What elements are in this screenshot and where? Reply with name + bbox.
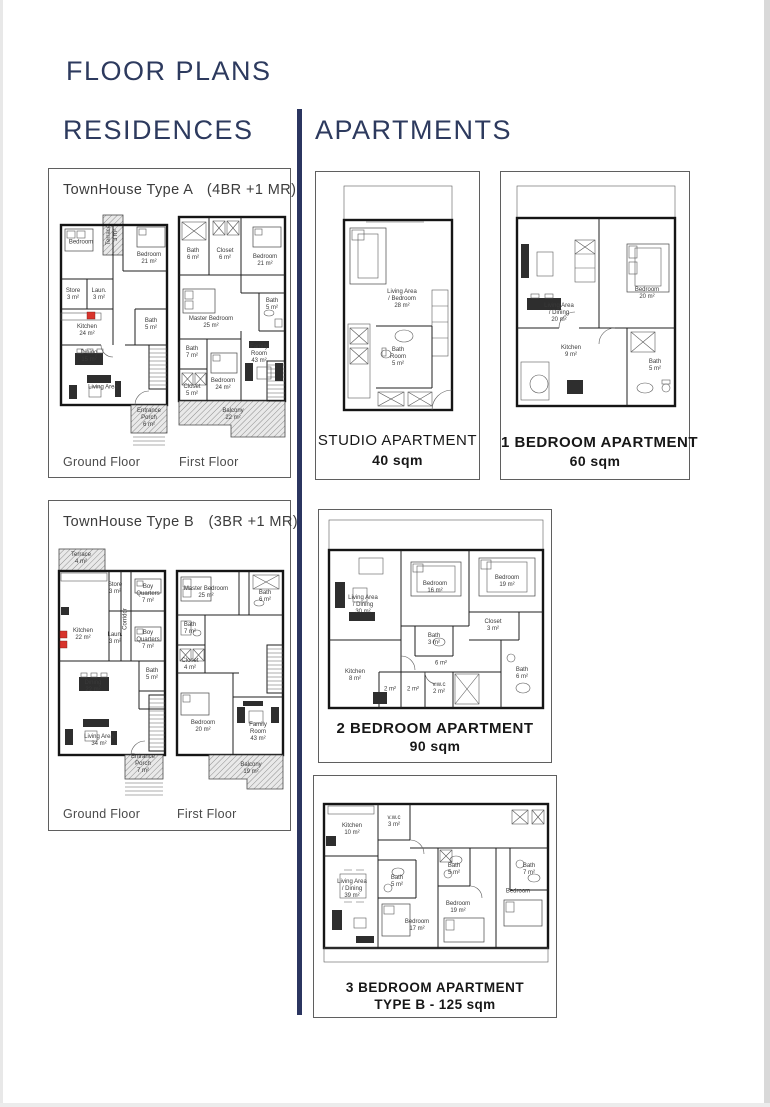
page-title: FLOOR PLANS xyxy=(66,56,272,87)
three-bedroom-panel: Kitchen 10 m² v.w.c 3 m² Living Area / D… xyxy=(313,775,557,1018)
floor-plan-drawing xyxy=(320,790,552,970)
townhouse-b-config: (3BR +1 MR) xyxy=(209,514,298,530)
townhouse-b-panel: TownHouse Type B (3BR +1 MR) Terrace 4 xyxy=(48,500,291,831)
floor-plan-drawing xyxy=(173,547,287,799)
one-bedroom-caption-title: 1 BEDROOM APARTMENT xyxy=(501,434,689,451)
one-bedroom-panel: Living Area / Dining 20 m² Bedroom 20 m²… xyxy=(500,171,690,480)
townhouse-a-title: TownHouse Type A (4BR +1 MR) xyxy=(63,182,296,198)
townhouse-a-first-plan: Bath 6 m² Closet 6 m² Bedroom 21 m² Mast… xyxy=(175,213,289,449)
studio-caption-title: STUDIO APARTMENT xyxy=(316,432,479,449)
page-bottom-edge xyxy=(0,1103,770,1107)
floor-plans-page: { "page": { "title": "FLOOR PLANS", "lef… xyxy=(0,0,770,1107)
ground-floor-label: Ground Floor xyxy=(63,455,140,469)
three-bedroom-plan: Kitchen 10 m² v.w.c 3 m² Living Area / D… xyxy=(320,790,552,970)
townhouse-b-title: TownHouse Type B (3BR +1 MR) xyxy=(63,514,298,530)
floor-plan-drawing xyxy=(336,184,460,426)
townhouse-b-ground-plan: Terrace 4 m² Store 3 m² Boy Quarters 7 m… xyxy=(55,547,169,799)
townhouse-b-name: TownHouse Type B xyxy=(63,514,194,530)
townhouse-a-panel: TownHouse Type A (4BR +1 MR) xyxy=(48,168,291,478)
townhouse-a-config: (4BR +1 MR) xyxy=(207,182,296,198)
two-bedroom-caption-title: 2 BEDROOM APARTMENT xyxy=(319,720,551,737)
three-bedroom-caption-title: 3 BEDROOM APARTMENT xyxy=(314,980,556,995)
first-floor-label: First Floor xyxy=(177,807,237,821)
one-bedroom-plan: Living Area / Dining 20 m² Bedroom 20 m²… xyxy=(509,184,683,428)
one-bedroom-caption-area: 60 sqm xyxy=(501,453,689,469)
page-left-edge xyxy=(0,0,3,1107)
apartments-header: APARTMENTS xyxy=(315,115,512,146)
townhouse-b-first-plan: Master Bedroom 25 m² Bath 6 m² Bath 7 m²… xyxy=(173,547,287,799)
studio-apartment-panel: Living Area / Bedroom 28 m² Bath Room 5 … xyxy=(315,171,480,480)
three-bedroom-caption-area: TYPE B - 125 sqm xyxy=(314,997,556,1012)
floor-plan-drawing xyxy=(175,213,289,449)
floor-plan-drawing xyxy=(55,547,169,799)
two-bedroom-panel: Living Area / Dining 30 m² Bedroom 16 m²… xyxy=(318,509,552,763)
section-divider xyxy=(297,109,302,1015)
residences-header: RESIDENCES xyxy=(63,115,254,146)
townhouse-a-name: TownHouse Type A xyxy=(63,182,192,198)
two-bedroom-plan: Living Area / Dining 30 m² Bedroom 16 m²… xyxy=(323,518,549,714)
page-right-edge xyxy=(764,0,770,1107)
townhouse-a-ground-plan: Bedroom Terrace 3 m² Bedroom 21 m² Store… xyxy=(57,213,171,449)
two-bedroom-caption-area: 90 sqm xyxy=(319,738,551,754)
studio-caption-area: 40 sqm xyxy=(316,452,479,468)
floor-plan-drawing xyxy=(509,184,683,428)
floor-plan-drawing xyxy=(323,518,549,714)
first-floor-label: First Floor xyxy=(179,455,239,469)
floor-plan-drawing xyxy=(57,213,171,449)
studio-plan: Living Area / Bedroom 28 m² Bath Room 5 … xyxy=(336,184,460,426)
ground-floor-label: Ground Floor xyxy=(63,807,140,821)
